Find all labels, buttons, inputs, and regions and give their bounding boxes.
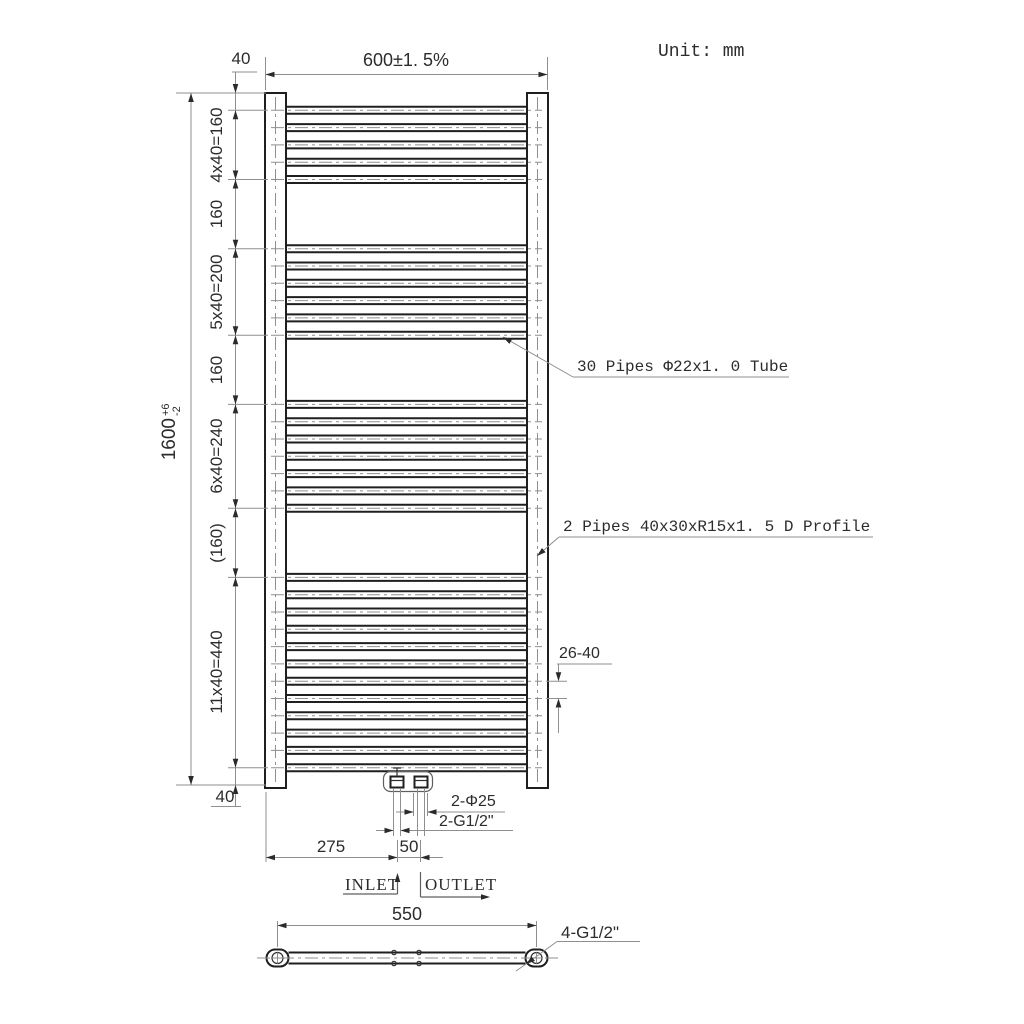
chain-dim-label-2: 160 — [207, 200, 226, 228]
overall-height-dim: 1600 +6 -2 — [159, 403, 183, 460]
chain-dim-label-6: (160) — [207, 523, 226, 563]
width-dim-label: 600±1. 5% — [363, 50, 449, 70]
bottom-thread-dim-label: 4-G1/2" — [561, 923, 619, 942]
overall-height-value: 1600 — [159, 418, 180, 460]
profiles-annotation: 2 Pipes 40x30xR15x1. 5 D Profile — [563, 518, 870, 536]
chain-dim-label-5: 6x40=240 — [207, 418, 226, 493]
bottom-offset-dim-label: 40 — [216, 787, 235, 806]
towel-radiator-dimension-drawing: Unit: mm 600±1. 5% 40 40 1600 +6 -2 4x40… — [0, 0, 1024, 1024]
technical-drawing-canvas: Unit: mm 600±1. 5% 40 40 1600 +6 -2 4x40… — [0, 0, 1024, 1024]
inlet-label: INLET — [345, 875, 399, 894]
top-offset-dim-label: 40 — [232, 49, 251, 68]
chain-dim-label-3: 5x40=200 — [207, 254, 226, 329]
overall-height-tol-minus: -2 — [171, 406, 183, 416]
chain-dim-label-7: 11x40=440 — [207, 630, 226, 713]
centers-dim-label: 550 — [392, 904, 422, 924]
chain-dim-label-4: 160 — [207, 356, 226, 384]
holes-dim-label: 2-Φ25 — [451, 793, 496, 810]
outlet-label: OUTLET — [425, 875, 497, 894]
pipe-spacing-dim-label: 26-40 — [559, 645, 600, 662]
unit-note: Unit: mm — [658, 42, 744, 62]
thread-dim-label: 2-G1/2" — [439, 813, 494, 830]
inlet-offset-dim-label: 275 — [317, 837, 345, 856]
chain-dim-label-1: 4x40=160 — [207, 107, 226, 182]
tubes-annotation: 30 Pipes Φ22x1. 0 Tube — [577, 358, 788, 376]
inlet-outlet-spacing-dim-label: 50 — [400, 837, 419, 856]
